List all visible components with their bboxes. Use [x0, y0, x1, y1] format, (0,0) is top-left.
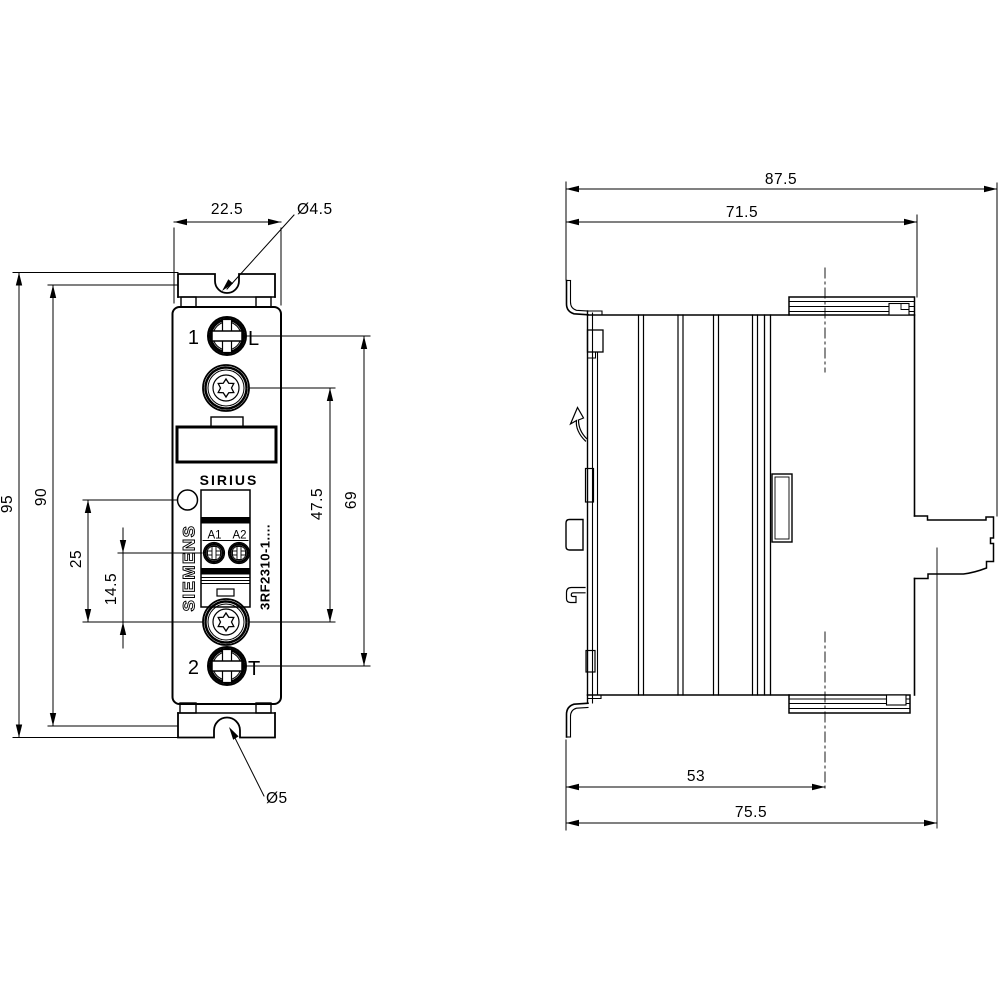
mounting-bracket: [566, 281, 603, 738]
heatsink-fins: [639, 315, 758, 695]
dim-center-offset-label: 53: [687, 768, 705, 785]
dim-coil-offset-label: 14.5: [103, 573, 120, 605]
dim-terminal-span: 69: [343, 336, 367, 666]
dim-coil-offset: 14.5: [103, 528, 126, 648]
technical-drawing-page: 22.5 Ø4.5 95 90 25: [0, 0, 1000, 1000]
dim-overall-depth: 87.5: [566, 171, 997, 192]
fixing-screw-top: [203, 365, 249, 411]
dim-overall-height: 95: [0, 273, 22, 738]
coil-screw-a2: [229, 543, 250, 564]
dim-led-offset: 25: [68, 500, 91, 622]
dim-center-offset: 53: [566, 768, 825, 790]
dim-overall-height-label: 95: [0, 495, 16, 513]
product-name: SIRIUS: [200, 472, 259, 488]
coil-a1-label: A1: [207, 530, 221, 542]
dimension-drawing: 22.5 Ø4.5 95 90 25: [0, 0, 1000, 1000]
coil-a2-label: A2: [232, 530, 246, 542]
dim-terminal-depth: 75.5: [566, 804, 937, 826]
side-view: 87.5 71.5 53 75.5: [566, 171, 997, 830]
fixing-screw-bottom: [203, 599, 249, 645]
dim-fixing-span-label: 47.5: [309, 488, 326, 520]
terminal-2-screw: [208, 647, 246, 685]
terminal-2-number: 2: [188, 657, 199, 679]
dim-body-depth-label: 71.5: [726, 204, 758, 221]
front-view: 22.5 Ø4.5 95 90 25: [0, 201, 370, 807]
terminal-t-tag: T: [248, 658, 260, 680]
coil-terminal-lug: [915, 516, 994, 579]
dim-overall-depth-label: 87.5: [765, 171, 797, 188]
din-clip-hook: [567, 588, 586, 603]
housing-side: [772, 297, 994, 713]
dim-fixing-span: 47.5: [309, 388, 333, 622]
dim-terminal-depth-label: 75.5: [735, 804, 767, 821]
dim-inner-height-label: 90: [33, 488, 50, 506]
brand-logo-text: SIEMENS: [180, 524, 199, 611]
coil-screw-a1: [204, 543, 225, 564]
dim-width: 22.5: [174, 201, 281, 225]
terminal-l-tag: L: [248, 328, 259, 350]
dim-led-offset-label: 25: [68, 550, 85, 568]
label-plate: [177, 417, 276, 462]
hole-top-label: Ø4.5: [297, 201, 333, 218]
terminal-1-number: 1: [188, 327, 199, 349]
terminal-1-screw: [208, 317, 246, 355]
status-led: [178, 490, 198, 510]
hole-bottom-label: Ø5: [266, 790, 288, 807]
side-extension-lines: [566, 182, 997, 830]
din-clip-spring: [571, 408, 587, 442]
din-clip-foot: [566, 520, 583, 551]
model-number: 3RF2310-1....: [258, 524, 273, 610]
heatsink: [588, 315, 790, 695]
dim-body-depth: 71.5: [566, 204, 917, 225]
dim-inner-height: 90: [33, 285, 56, 726]
dim-width-label: 22.5: [211, 201, 243, 218]
dim-terminal-span-label: 69: [343, 491, 360, 509]
